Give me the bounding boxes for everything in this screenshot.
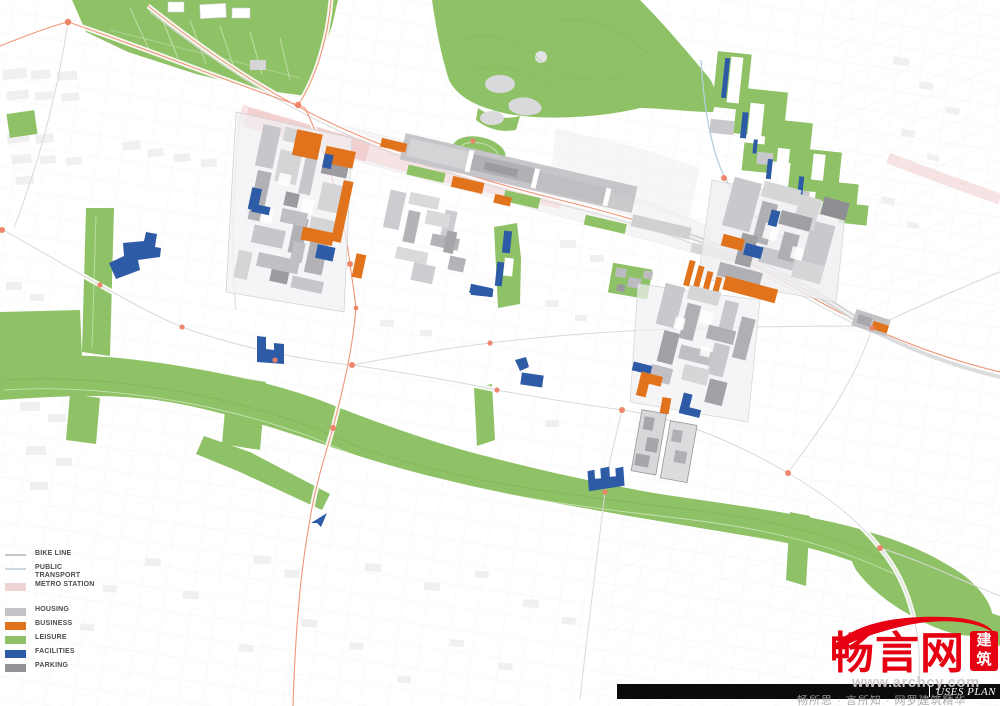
building-cluster-west [226,112,366,312]
map-canvas [0,0,1000,706]
building-cluster-east-lower [624,276,760,425]
watermark-badge-bottom: 筑 [976,651,991,668]
watermark-badge-top: 建 [976,632,991,649]
watermark-brand-text: 畅言网 [830,631,965,677]
watermark-badge: 建 筑 [970,631,998,671]
uses-plan-page: BIKE LINE PUBLIC TRANSPORT METRO STATION… [0,0,1000,706]
watermark-url: www.archcy.com [852,674,980,691]
watermark-tagline: 畅所思 · 言所知 · 网罗建筑精华 [797,692,967,706]
